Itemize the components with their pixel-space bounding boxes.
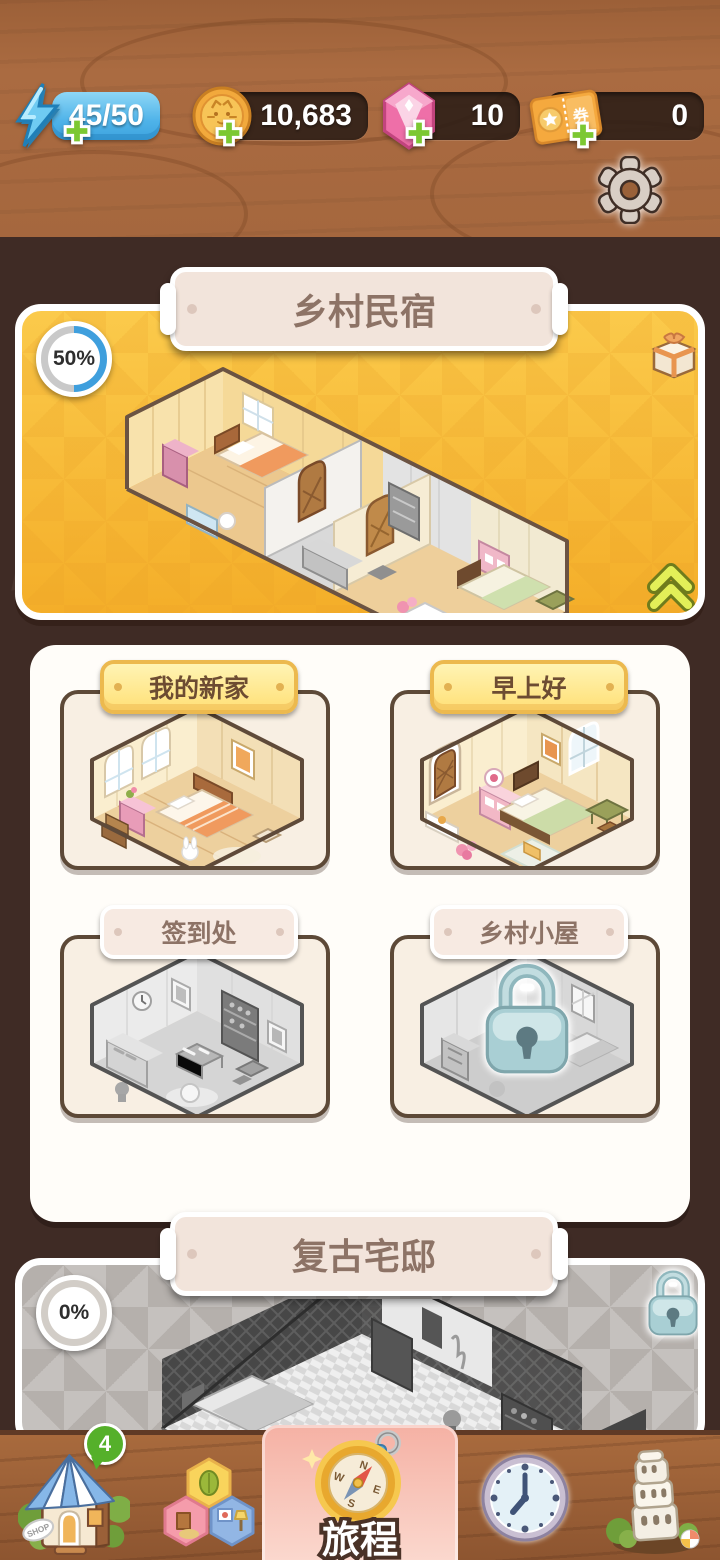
locked-section-lock-icon bbox=[644, 1267, 702, 1337]
featured-progress-value: 50% bbox=[53, 347, 95, 371]
room-card-good-morning[interactable] bbox=[390, 690, 660, 870]
room-banner-3: 签到处 bbox=[100, 905, 298, 959]
room-card-my-new-home[interactable] bbox=[60, 690, 330, 870]
bottom-nav: N S W E 旅程 bbox=[0, 1430, 720, 1560]
room-banner-1: 我的新家 bbox=[100, 660, 298, 714]
next-section-title: 复古宅邸 bbox=[292, 1228, 436, 1280]
nav-tab-journey[interactable]: N S W E 旅程 bbox=[262, 1425, 458, 1560]
room-name-1: 我的新家 bbox=[149, 669, 249, 705]
clock-icon[interactable] bbox=[480, 1453, 570, 1543]
ticket-value: 0 bbox=[671, 99, 688, 133]
room-name-2: 早上好 bbox=[491, 669, 566, 705]
room-thumb-3 bbox=[72, 949, 322, 1118]
energy-plus-icon[interactable] bbox=[62, 116, 92, 146]
lock-icon bbox=[478, 958, 576, 1076]
coin-value: 10,683 bbox=[260, 99, 352, 133]
featured-title: 乡村民宿 bbox=[292, 283, 436, 335]
featured-section-banner: 乡村民宿 bbox=[170, 267, 558, 351]
compass-icon: N S W E bbox=[300, 1427, 420, 1525]
gear-icon[interactable] bbox=[596, 156, 664, 224]
journey-label: 旅程 bbox=[280, 1517, 440, 1560]
lightning-icon bbox=[10, 80, 68, 154]
game-screen: 45/50 10,683 10 0 券 bbox=[0, 0, 720, 1560]
room-thumb-1 bbox=[72, 704, 322, 870]
chevron-up-icon[interactable] bbox=[644, 557, 698, 613]
tower-icon[interactable] bbox=[606, 1443, 704, 1555]
gift-icon[interactable] bbox=[646, 323, 702, 381]
featured-progress: 50% bbox=[36, 321, 112, 397]
shop-badge: 4 bbox=[84, 1423, 126, 1465]
room-name-4: 乡村小屋 bbox=[479, 914, 579, 950]
collection-hex-icon[interactable] bbox=[156, 1457, 262, 1557]
featured-room-scene bbox=[67, 325, 667, 615]
coin-plus-icon[interactable] bbox=[214, 118, 244, 148]
room-banner-2: 早上好 bbox=[430, 660, 628, 714]
featured-room-card[interactable]: 50% bbox=[15, 304, 705, 620]
ticket-plus-icon[interactable] bbox=[568, 120, 598, 150]
room-card-checkin[interactable] bbox=[60, 935, 330, 1118]
room-banner-4: 乡村小屋 bbox=[430, 905, 628, 959]
room-thumb-2 bbox=[402, 704, 652, 870]
shop-badge-count: 4 bbox=[99, 1431, 111, 1457]
locked-progress: 0% bbox=[36, 1275, 112, 1351]
journey-label-text: 旅程 bbox=[322, 1520, 398, 1560]
gem-plus-icon[interactable] bbox=[404, 118, 434, 148]
locked-progress-value: 0% bbox=[59, 1301, 89, 1325]
next-section-banner: 复古宅邸 bbox=[170, 1212, 558, 1296]
gem-value: 10 bbox=[471, 99, 504, 133]
room-name-3: 签到处 bbox=[161, 914, 236, 950]
